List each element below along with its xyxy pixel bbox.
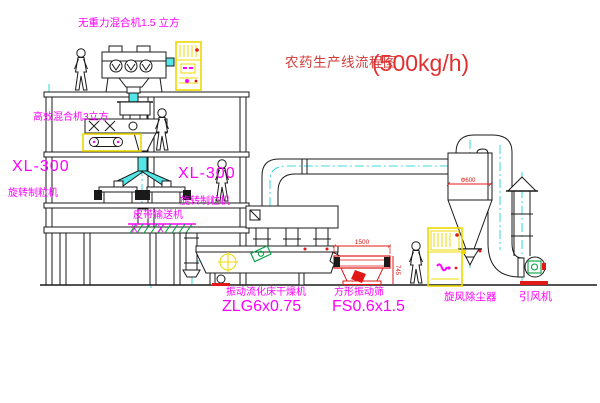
label-sieve-model: FS0.6x1.5 [332,298,405,315]
indicator-dot [195,48,199,52]
fluid-bed-dryer [196,206,345,286]
label-gravity-mixer: 无重力混合机1.5 立方 [78,16,180,29]
label-granulator-left-name: 旋转制粒机 [8,186,58,199]
label-granulator-left-model: XL-300 [12,158,70,175]
page-title-capacity: (500kg/h) [372,50,469,76]
label-belt-conveyor: 皮带输送机 [133,208,183,221]
dim-cyclone-diameter: Φ600 [461,178,476,184]
worker-figure [75,49,88,90]
dim-sieve-length: 1500 [355,239,370,246]
cyclone-separator [447,135,522,277]
label-sieve-name: 方形振动筛 [334,285,384,298]
control-cabinet-right [428,228,462,286]
granulator-left [94,181,143,203]
vibrating-sieve [333,245,393,285]
control-cabinet-top [176,42,201,90]
cad-drawing: 农药生产线流程图 (500kg/h) 无重力混合机1.5 立方 高效混合机3立方… [0,0,600,403]
label-high-eff-mixer: 高效混合机3立方 [33,110,109,123]
label-granulator-mid-name: 旋转制粒机 [180,194,230,207]
indicator-dot [455,233,459,237]
label-dryer-name: 振动流化床干燥机 [226,285,306,298]
label-dryer-model: ZLG6x0.75 [222,298,301,315]
worker-figure [156,109,169,150]
label-granulator-mid-model: XL-300 [178,165,236,182]
dim-sieve-height: 745 [394,265,400,276]
worker-figure [410,242,423,283]
label-fan: 引风机 [519,289,552,303]
process-flow-diagram: 农药生产线流程图 (500kg/h) 无重力混合机1.5 立方 高效混合机3立方… [0,0,600,403]
label-cyclone: 旋风除尘器 [444,290,497,303]
induced-draft-fan [518,257,548,285]
